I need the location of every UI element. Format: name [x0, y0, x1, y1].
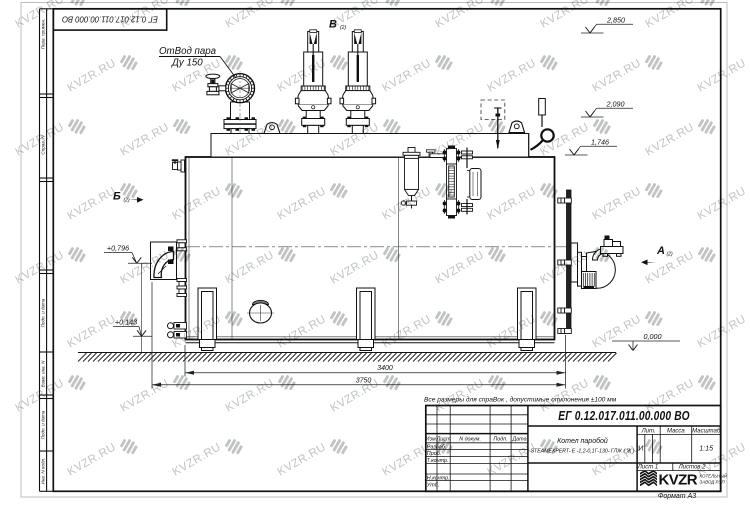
svg-text:Инв. N подл.: Инв. N подл.	[41, 458, 46, 485]
svg-text:N докум.: N докум.	[459, 437, 481, 443]
svg-text:1,746: 1,746	[591, 137, 609, 146]
svg-text:ЗАВОД РЭП: ЗАВОД РЭП	[700, 480, 726, 485]
svg-text:Дата: Дата	[511, 437, 526, 443]
svg-text:1:15: 1:15	[699, 446, 713, 453]
svg-text:ОтВод пара: ОтВод пара	[159, 46, 217, 57]
svg-text:Формат А3: Формат А3	[658, 493, 696, 500]
svg-text:Утб.: Утб.	[426, 482, 439, 488]
svg-text:Ду 150: Ду 150	[171, 58, 203, 69]
svg-text:Подп. и дата: Подп. и дата	[41, 410, 46, 439]
svg-text:Взам. инв. N: Взам. инв. N	[41, 360, 46, 387]
svg-text:+0,796: +0,796	[107, 244, 129, 253]
svg-text:0,000: 0,000	[644, 332, 662, 341]
svg-text:2,850: 2,850	[606, 16, 625, 25]
svg-text:А: А	[656, 245, 665, 257]
svg-text:Масса: Масса	[667, 428, 685, 434]
svg-text:Лист 1: Лист 1	[637, 465, 658, 471]
svg-text:Н.контр.: Н.контр.	[427, 475, 450, 481]
svg-text:(2): (2)	[124, 198, 130, 204]
svg-text:Подп. и дата: Подп. и дата	[41, 298, 46, 327]
svg-text:Перв. примен.: Перв. примен.	[41, 19, 46, 50]
svg-text:Лит.: Лит.	[641, 428, 656, 434]
svg-text:3400: 3400	[377, 365, 393, 372]
svg-text:Т.контр.: Т.контр.	[427, 458, 449, 464]
svg-text:Подп.: Подп.	[493, 437, 507, 443]
svg-text:2,090: 2,090	[606, 99, 625, 108]
svg-text:(2): (2)	[667, 252, 673, 258]
svg-text:Котел паробой: Котел паробой	[557, 437, 608, 445]
svg-text:Масштаб: Масштаб	[692, 428, 721, 434]
svg-text:ЕГ 0.12.017.011.00.000 ВО: ЕГ 0.12.017.011.00.000 ВО	[558, 409, 689, 423]
svg-text:KVZR: KVZR	[659, 472, 698, 489]
